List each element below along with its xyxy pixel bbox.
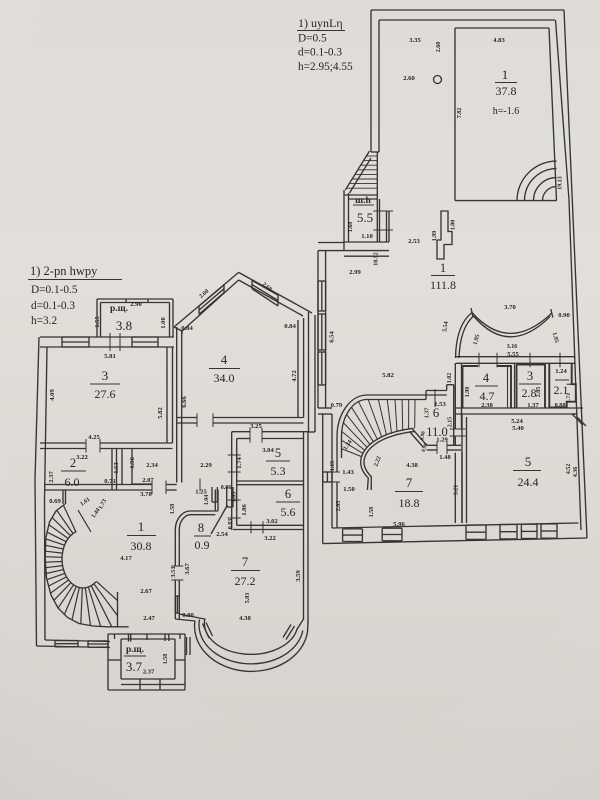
- svg-text:ш.h: ш.h: [355, 196, 371, 206]
- svg-text:D=0.5: D=0.5: [298, 33, 327, 45]
- svg-text:1) 2-pn hwpy: 1) 2-pn hwpy: [30, 264, 98, 278]
- svg-text:3.67: 3.67: [184, 563, 191, 575]
- svg-text:1.04: 1.04: [204, 495, 210, 506]
- svg-text:4.25: 4.25: [88, 434, 100, 441]
- svg-text:3: 3: [527, 369, 533, 383]
- svg-text:2.60: 2.60: [403, 75, 415, 82]
- svg-text:3.70: 3.70: [504, 304, 516, 311]
- svg-text:1.86: 1.86: [241, 504, 248, 516]
- svg-text:5.40: 5.40: [512, 425, 524, 432]
- svg-text:7: 7: [242, 554, 249, 569]
- svg-text:1.99: 1.99: [465, 387, 471, 398]
- svg-text:2.47: 2.47: [143, 615, 155, 622]
- svg-text:5.24: 5.24: [511, 418, 523, 425]
- svg-text:1.68: 1.68: [348, 222, 354, 233]
- svg-text:27.2: 27.2: [235, 574, 256, 588]
- svg-text:1.73: 1.73: [566, 393, 572, 403]
- svg-text:7.82: 7.82: [457, 108, 463, 119]
- svg-text:5: 5: [275, 446, 281, 460]
- svg-text:0.84: 0.84: [181, 325, 193, 332]
- svg-text:6: 6: [285, 487, 291, 501]
- svg-text:0.69: 0.69: [49, 498, 61, 505]
- svg-text:2.8: 2.8: [522, 386, 537, 400]
- svg-text:2.29: 2.29: [200, 462, 212, 469]
- svg-text:2.05: 2.05: [536, 387, 542, 398]
- svg-text:1.50: 1.50: [343, 486, 355, 493]
- svg-text:5.3: 5.3: [271, 464, 286, 478]
- svg-text:p.щ.: p.щ.: [126, 645, 144, 655]
- svg-text:1.74: 1.74: [236, 457, 243, 469]
- svg-text:1.05: 1.05: [232, 492, 238, 503]
- svg-text:111.8: 111.8: [430, 278, 456, 292]
- svg-text:8: 8: [198, 521, 204, 535]
- svg-text:4.72: 4.72: [291, 370, 298, 382]
- svg-text:18.8: 18.8: [399, 496, 420, 510]
- svg-text:3.22: 3.22: [76, 454, 88, 461]
- svg-text:1.43: 1.43: [342, 469, 354, 476]
- svg-text:1: 1: [138, 519, 145, 534]
- svg-text:p.щ.: p.щ.: [110, 304, 128, 314]
- svg-text:3.7: 3.7: [126, 659, 143, 674]
- svg-text:1.02: 1.02: [447, 373, 453, 384]
- svg-text:5.5: 5.5: [357, 210, 373, 225]
- svg-text:1: 1: [502, 67, 509, 82]
- svg-text:2.90: 2.90: [130, 301, 142, 308]
- svg-text:30.8: 30.8: [131, 539, 152, 553]
- svg-text:6.0: 6.0: [65, 475, 80, 489]
- svg-text:6: 6: [433, 405, 440, 420]
- svg-text:3.16: 3.16: [507, 344, 518, 350]
- svg-text:2: 2: [70, 456, 76, 470]
- svg-text:1.15: 1.15: [330, 461, 336, 472]
- svg-text:1.00: 1.00: [160, 317, 167, 329]
- svg-text:1.53: 1.53: [113, 462, 120, 474]
- svg-text:2.37: 2.37: [143, 669, 155, 676]
- svg-text:2.99: 2.99: [349, 269, 361, 276]
- svg-text:3.02: 3.02: [266, 518, 278, 525]
- svg-text:1: 1: [440, 261, 446, 275]
- svg-text:3.59: 3.59: [295, 570, 302, 582]
- svg-text:0.90: 0.90: [558, 312, 570, 319]
- svg-text:19.13: 19.13: [558, 176, 564, 190]
- svg-text:4.38: 4.38: [406, 462, 418, 469]
- svg-text:1) uynLη: 1) uynLη: [298, 16, 343, 30]
- svg-text:0.9: 0.9: [195, 538, 210, 552]
- svg-text:0.79: 0.79: [331, 402, 343, 409]
- svg-text:1.58: 1.58: [163, 654, 169, 665]
- svg-text:1.55: 1.55: [94, 316, 101, 328]
- svg-text:1.10: 1.10: [361, 233, 373, 240]
- svg-text:5.03: 5.03: [245, 593, 251, 604]
- svg-text:1.58: 1.58: [170, 504, 176, 515]
- svg-text:1.56: 1.56: [129, 457, 136, 469]
- svg-text:1.99: 1.99: [432, 231, 438, 242]
- svg-text:2.60: 2.60: [436, 42, 442, 53]
- svg-text:3.35: 3.35: [409, 37, 421, 44]
- svg-text:0.83: 0.83: [228, 519, 234, 530]
- svg-text:0.80: 0.80: [182, 612, 194, 619]
- svg-text:7: 7: [406, 475, 413, 490]
- svg-text:4.17: 4.17: [120, 555, 132, 562]
- svg-text:3.22: 3.22: [264, 535, 276, 542]
- svg-text:24.4: 24.4: [518, 475, 539, 489]
- svg-text:37.8: 37.8: [496, 84, 517, 98]
- svg-text:4.09: 4.09: [49, 389, 56, 401]
- svg-text:2.37: 2.37: [48, 471, 55, 483]
- svg-text:3.70: 3.70: [140, 491, 152, 498]
- svg-text:2.53: 2.53: [408, 238, 420, 245]
- svg-text:d=0.1-0.3: d=0.1-0.3: [298, 47, 342, 59]
- svg-text:3.51: 3.51: [170, 566, 177, 578]
- svg-text:2.38: 2.38: [481, 402, 493, 409]
- svg-text:0.88: 0.88: [555, 402, 566, 409]
- svg-text:2.07: 2.07: [142, 477, 154, 484]
- svg-text:10.52: 10.52: [374, 252, 380, 266]
- svg-text:5.82: 5.82: [157, 407, 164, 419]
- svg-text:2.05: 2.05: [336, 501, 342, 512]
- svg-text:0.84: 0.84: [284, 323, 296, 330]
- svg-text:1.37: 1.37: [527, 402, 539, 409]
- svg-text:h=-1.6: h=-1.6: [493, 106, 519, 117]
- svg-text:1.37: 1.37: [425, 408, 431, 419]
- svg-text:h=2.95;4.55: h=2.95;4.55: [298, 61, 353, 73]
- svg-text:D=0.1-0.5: D=0.1-0.5: [31, 284, 78, 296]
- svg-text:4.36: 4.36: [573, 467, 579, 478]
- svg-text:4.38: 4.38: [239, 615, 251, 622]
- svg-text:5: 5: [525, 454, 532, 469]
- svg-text:6.54: 6.54: [329, 331, 336, 343]
- svg-text:1.00: 1.00: [451, 220, 457, 231]
- svg-text:27.6: 27.6: [95, 387, 116, 401]
- svg-text:3.21: 3.21: [454, 485, 460, 496]
- svg-text:1.24: 1.24: [555, 368, 567, 375]
- svg-text:6.66: 6.66: [181, 396, 188, 408]
- svg-text:0.86: 0.86: [221, 485, 232, 491]
- svg-text:h=3.2: h=3.2: [31, 315, 57, 327]
- svg-text:5.96: 5.96: [393, 521, 405, 528]
- svg-text:5.6: 5.6: [281, 505, 296, 519]
- svg-text:2.15: 2.15: [448, 417, 454, 428]
- svg-text:4.83: 4.83: [493, 37, 505, 44]
- svg-text:3.8: 3.8: [116, 318, 132, 333]
- svg-text:4: 4: [221, 352, 228, 367]
- svg-text:1.58: 1.58: [369, 507, 375, 518]
- svg-text:1.25: 1.25: [195, 489, 207, 496]
- svg-text:2.67: 2.67: [140, 588, 152, 595]
- svg-text:5.81: 5.81: [104, 353, 116, 360]
- svg-text:4.7: 4.7: [480, 389, 495, 403]
- svg-text:3: 3: [102, 368, 109, 383]
- svg-text:4.52: 4.52: [566, 464, 572, 475]
- svg-text:4: 4: [483, 371, 490, 385]
- svg-text:5.82: 5.82: [382, 372, 394, 379]
- svg-text:3.04: 3.04: [262, 447, 274, 454]
- svg-text:3.25: 3.25: [250, 423, 262, 430]
- svg-text:34.0: 34.0: [214, 371, 235, 385]
- svg-text:2.54: 2.54: [216, 531, 228, 538]
- svg-text:d=0.1-0.3: d=0.1-0.3: [31, 300, 75, 312]
- svg-text:2.34: 2.34: [146, 462, 158, 469]
- svg-text:1.48: 1.48: [439, 454, 451, 461]
